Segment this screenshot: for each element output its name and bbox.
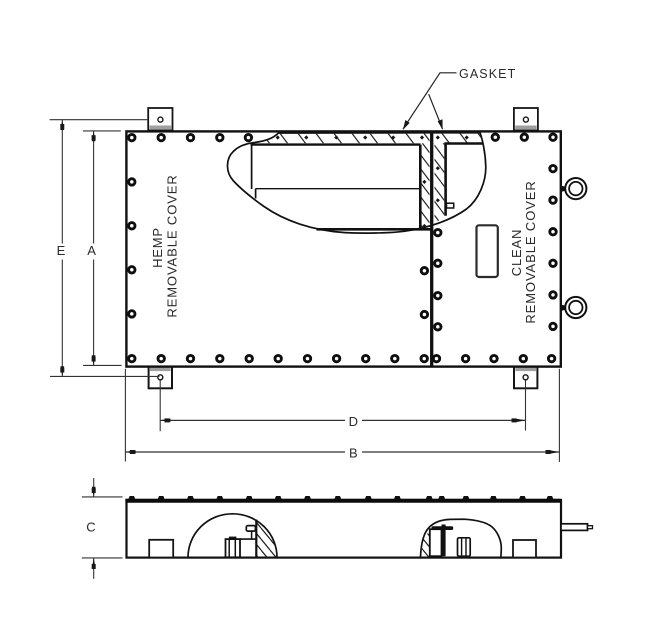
svg-text:E: E <box>57 243 66 258</box>
svg-text:A: A <box>87 243 96 258</box>
svg-text:CLEAN: CLEAN <box>509 229 524 276</box>
svg-text:C: C <box>86 519 95 534</box>
svg-text:GASKET: GASKET <box>459 67 516 81</box>
svg-text:REMOVABLE COVER: REMOVABLE COVER <box>165 174 180 317</box>
svg-text:B: B <box>349 446 358 461</box>
svg-text:REMOVABLE COVER: REMOVABLE COVER <box>523 180 538 323</box>
svg-text:HEMP: HEMP <box>150 227 165 268</box>
svg-text:D: D <box>349 414 358 429</box>
